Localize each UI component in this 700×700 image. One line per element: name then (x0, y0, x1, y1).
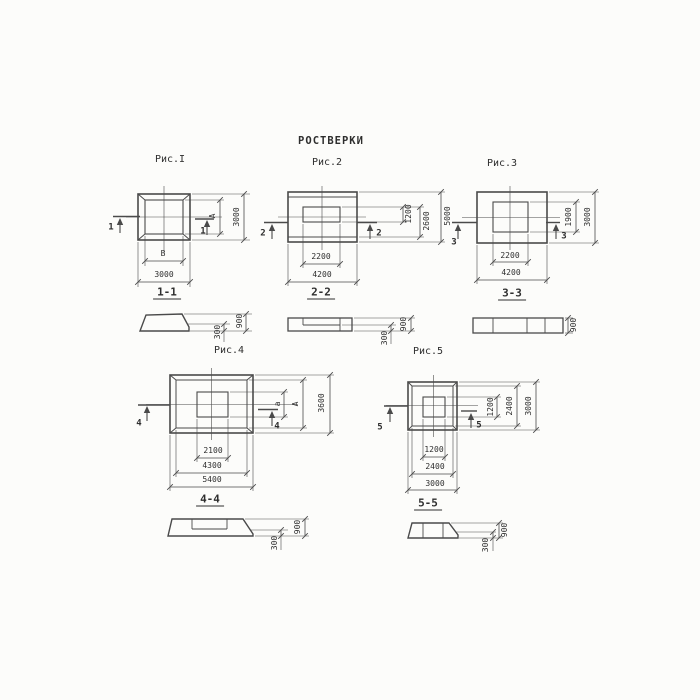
fig2-section-dim-edge: 300 (381, 331, 389, 345)
fig3-cut-marker-left: 3 (451, 239, 456, 248)
fig4-dim-right-outer: 3600 (318, 393, 326, 412)
fig1-cut-marker-right: 1 (200, 228, 205, 237)
fig5-cut-marker-left: 5 (377, 424, 382, 433)
fig3-dim-bottom-inner: 2200 (500, 252, 519, 260)
fig4-section-dim-edge: 300 (271, 536, 279, 550)
fig2-section-dim-total: 900 (400, 317, 408, 331)
fig1-caption: Рис.I (155, 155, 185, 165)
fig3-dim-right-outer: 3000 (584, 207, 592, 226)
fig4-caption: Рис.4 (214, 346, 244, 356)
fig2-dim-bottom-outer: 4200 (312, 271, 331, 279)
fig2-section-label: 2-2 (307, 287, 335, 300)
fig3-cut-marker-right: 3 (561, 233, 566, 242)
fig5-dim-right-outer: 3000 (525, 396, 533, 415)
sheet-title: РОСТВЕРКИ (298, 136, 364, 147)
fig5-caption: Рис.5 (413, 347, 443, 357)
fig5-dim-bottom-middle: 2400 (425, 463, 444, 471)
fig4-dim-bottom-middle: 4300 (202, 462, 221, 470)
fig3-section-label: 3-3 (498, 288, 526, 301)
fig3-caption: Рис.3 (487, 159, 517, 169)
fig4-dim-right-middle: А (292, 402, 300, 407)
fig2-dim-right-inner: 1200 (405, 204, 413, 223)
fig4-dim-bottom-outer: 5400 (202, 476, 221, 484)
fig2-cut-marker-left: 2 (260, 230, 265, 239)
fig5-cut-marker-right: 5 (476, 422, 481, 431)
fig1-dim-bottom-inner: В (161, 250, 166, 258)
fig1-section-label: 1-1 (153, 287, 181, 300)
fig5-dim-right-middle: 2400 (506, 396, 514, 415)
drawing-sheet: РОСТВЕРКИ Рис.I Рис.2 Рис.3 Рис.4 Рис.5 … (0, 0, 700, 700)
fig5-section-dim-total: 900 (501, 523, 509, 537)
fig4-section-dim-total: 900 (294, 520, 302, 534)
fig4-dim-bottom-inner: 2100 (203, 447, 222, 455)
fig2-caption: Рис.2 (312, 158, 342, 168)
fig1-section-dim-total: 900 (236, 314, 244, 328)
fig5-dim-bottom-inner: 1200 (424, 446, 443, 454)
fig2-dim-right-middle: 2600 (423, 211, 431, 230)
fig5-section-dim-edge: 300 (482, 538, 490, 552)
fig3-section-dim-total: 900 (570, 318, 578, 332)
fig3-dim-right-inner: 1900 (565, 207, 573, 226)
fig3-dim-bottom-outer: 4200 (501, 269, 520, 277)
fig1-dim-right-outer: 3000 (233, 207, 241, 226)
fig2-cut-marker-right: 2 (376, 230, 381, 239)
fig1-section-dim-edge: 300 (214, 325, 222, 339)
fig2-dim-bottom-inner: 2200 (311, 253, 330, 261)
fig5-section-label: 5-5 (414, 498, 442, 511)
fig5-dim-bottom-outer: 3000 (425, 480, 444, 488)
fig4-section-label: 4-4 (196, 494, 224, 507)
fig4-cut-marker-right: 4 (274, 423, 279, 432)
drawing-linework (0, 0, 700, 700)
fig2-dim-right-outer: 5000 (444, 206, 452, 225)
fig1-cut-marker-left: 1 (108, 224, 113, 233)
fig4-cut-marker-left: 4 (136, 420, 141, 429)
fig4-dim-right-inner: а (274, 402, 282, 407)
fig1-dim-right-inner: А (209, 214, 217, 219)
fig5-dim-right-inner: 1200 (487, 397, 495, 416)
fig1-dim-bottom-outer: 3000 (154, 271, 173, 279)
